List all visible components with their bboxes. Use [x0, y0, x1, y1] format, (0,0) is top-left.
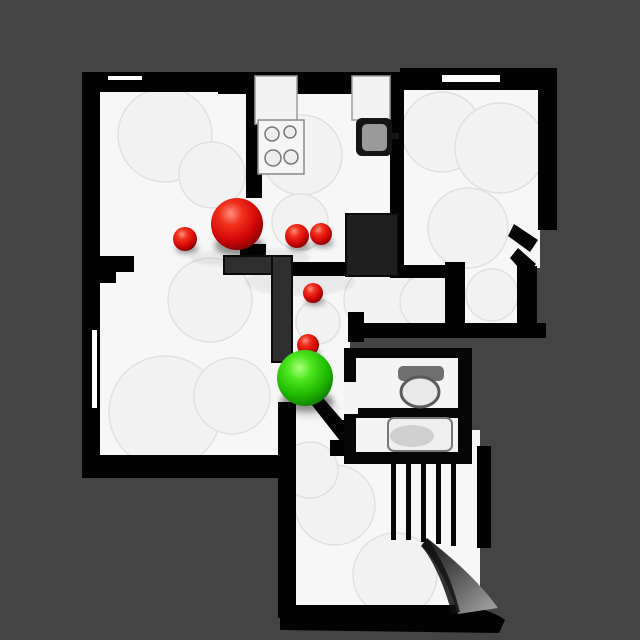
wall-segment	[82, 72, 232, 92]
agent-sphere[interactable]	[277, 350, 333, 406]
stove	[258, 120, 304, 174]
map-stage	[0, 0, 640, 640]
wall-segment	[477, 446, 491, 548]
window	[108, 76, 142, 80]
bathtub-basin	[390, 425, 434, 447]
toilet-bowl	[401, 377, 439, 407]
wall-segment	[538, 68, 557, 230]
target-sphere[interactable]	[173, 227, 197, 251]
target-marker-0[interactable]	[211, 198, 264, 256]
wall-segment	[517, 266, 537, 328]
target-sphere[interactable]	[310, 223, 332, 245]
window	[92, 330, 97, 408]
target-sphere[interactable]	[211, 198, 263, 250]
wall-segment	[348, 323, 546, 338]
floorplan-canvas[interactable]	[0, 0, 640, 640]
agent-marker[interactable]	[277, 350, 334, 412]
sink-tap	[391, 133, 399, 139]
fridge	[352, 76, 390, 120]
kitchen-island	[346, 214, 398, 276]
wall-segment	[348, 312, 364, 342]
target-sphere[interactable]	[303, 283, 323, 303]
wall-segment	[82, 266, 100, 478]
bathroom-divider	[354, 408, 458, 418]
bathroom-door-gap	[344, 382, 358, 414]
wall-segment	[100, 270, 116, 283]
wall-segment	[290, 262, 350, 276]
wall-segment	[272, 256, 292, 362]
wall-segment	[445, 262, 465, 325]
wall-segment	[278, 402, 296, 618]
window	[442, 75, 500, 82]
wall-segment	[82, 455, 284, 478]
sink-basin	[362, 124, 387, 151]
target-sphere[interactable]	[285, 224, 309, 248]
kitchen-counter	[255, 76, 297, 124]
wall-segment	[82, 72, 100, 268]
